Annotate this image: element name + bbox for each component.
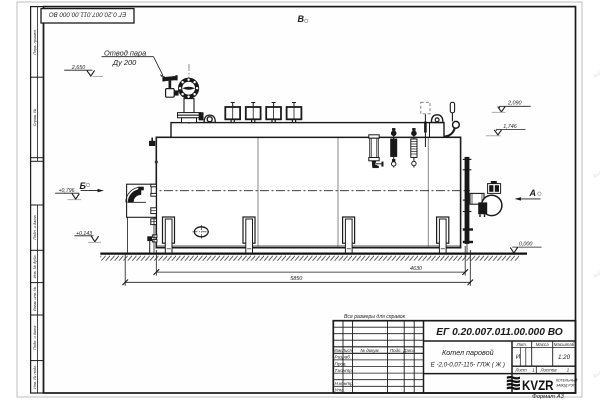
svg-text:Перв. примен.: Перв. примен.: [32, 29, 37, 55]
svg-text:2,090: 2,090: [507, 101, 522, 107]
svg-text:2: 2: [566, 368, 570, 373]
svg-text:Подп. и дата: Подп. и дата: [32, 214, 37, 239]
svg-text:Взам. инв. №: Взам. инв. №: [32, 286, 37, 311]
svg-text:Лист: Лист: [341, 348, 354, 353]
svg-text:Масса: Масса: [536, 342, 550, 347]
svg-text:ЕГ 0.20.007.011.00.000 ВО: ЕГ 0.20.007.011.00.000 ВО: [49, 11, 126, 18]
svg-text:Лист: Лист: [514, 368, 527, 373]
svg-text:KVZR: KVZR: [522, 378, 554, 393]
svg-text:ЕГ 0.20.007.011.00.000 ВО: ЕГ 0.20.007.011.00.000 ВО: [436, 327, 563, 338]
svg-text:Ду 200: Ду 200: [112, 58, 137, 67]
svg-text:Т.контр.: Т.контр.: [335, 368, 354, 373]
svg-text:5850: 5850: [290, 276, 302, 282]
svg-text:Пров.: Пров.: [335, 361, 347, 366]
svg-text:Б: Б: [80, 181, 87, 191]
svg-text:Формат А3: Формат А3: [532, 394, 564, 400]
svg-text:Подп.: Подп.: [390, 348, 402, 353]
svg-text:1:20: 1:20: [558, 354, 571, 361]
svg-text:Справ. №: Справ. №: [32, 108, 37, 126]
svg-text:Листов: Листов: [540, 368, 558, 373]
svg-text:Е -2,0-0,07-115- ГЛЖ ( Ж ): Е -2,0-0,07-115- ГЛЖ ( Ж ): [431, 361, 505, 368]
svg-text:Подп. и дата: Подп. и дата: [32, 325, 37, 350]
svg-text:Инв. № подл.: Инв. № подл.: [32, 365, 37, 389]
svg-text:Дата: Дата: [402, 348, 415, 353]
svg-text:Утв.: Утв.: [335, 388, 345, 393]
svg-text:4630: 4630: [410, 266, 422, 272]
svg-text:Масштаб: Масштаб: [554, 342, 575, 347]
svg-text:Лит.: Лит.: [516, 342, 527, 347]
svg-text:Н.контр.: Н.контр.: [335, 381, 354, 386]
svg-text:КОТЕЛЬНЫЙ: КОТЕЛЬНЫЙ: [556, 379, 578, 383]
svg-text:Отвод пара: Отвод пара: [104, 48, 146, 57]
svg-text:ЗАВОД РЭП: ЗАВОД РЭП: [556, 384, 576, 388]
svg-text:Разраб.: Разраб.: [335, 355, 352, 360]
svg-text:В: В: [298, 14, 305, 24]
svg-text:И: И: [516, 354, 521, 361]
svg-text:№ докум.: № докум.: [360, 348, 379, 353]
svg-text:А: А: [529, 188, 537, 198]
svg-text:Инв. № дубл.: Инв. № дубл.: [32, 254, 37, 278]
svg-text:Все размеры для справок: Все размеры для справок: [344, 314, 406, 320]
svg-text:Котел паровой: Котел паровой: [442, 348, 494, 357]
